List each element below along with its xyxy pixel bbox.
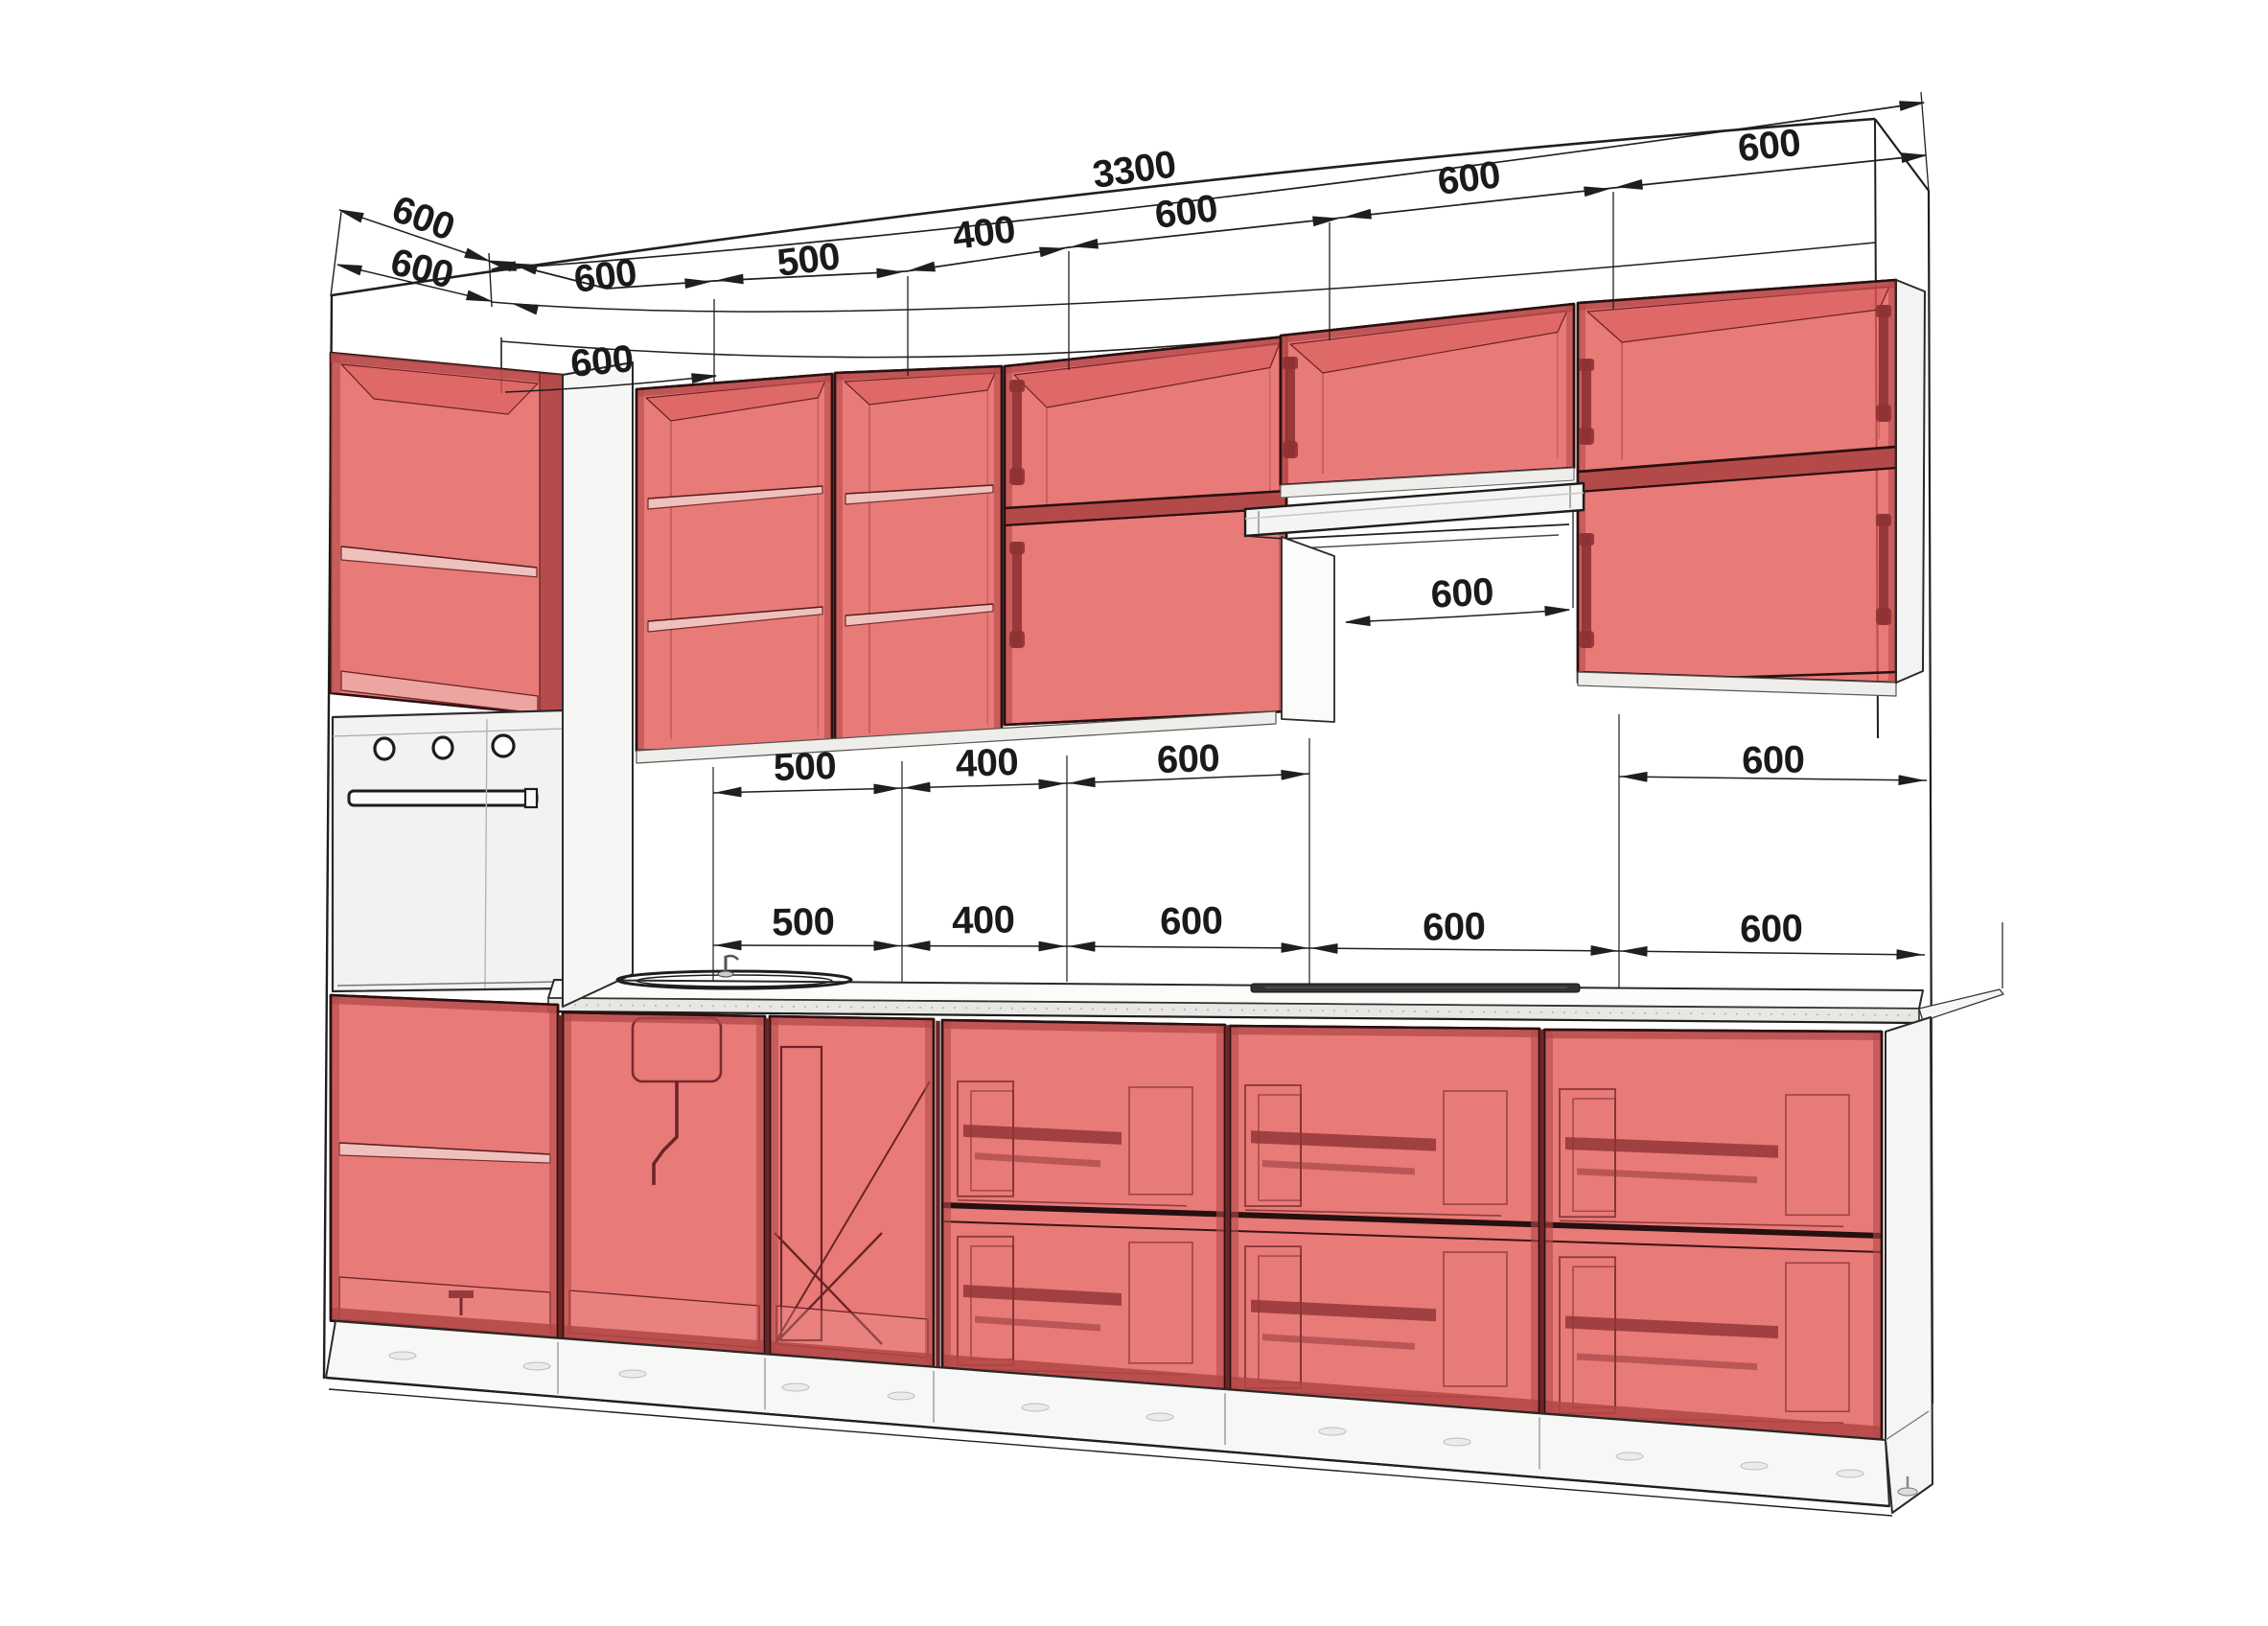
svg-text:600: 600: [568, 337, 635, 385]
svg-text:500: 500: [772, 900, 835, 943]
svg-text:600: 600: [1742, 738, 1805, 781]
svg-text:600: 600: [1156, 737, 1220, 781]
svg-text:400: 400: [955, 741, 1019, 785]
svg-text:600: 600: [1160, 899, 1223, 942]
svg-text:600: 600: [1430, 570, 1494, 616]
svg-text:500: 500: [775, 235, 842, 285]
svg-text:600: 600: [1423, 905, 1486, 948]
svg-text:600: 600: [1152, 187, 1219, 237]
svg-text:600: 600: [1736, 122, 1802, 171]
svg-text:600: 600: [571, 251, 638, 301]
svg-text:400: 400: [952, 898, 1015, 941]
svg-text:500: 500: [773, 745, 837, 789]
svg-text:600: 600: [1435, 153, 1502, 203]
svg-text:400: 400: [950, 208, 1017, 258]
svg-text:600: 600: [1740, 907, 1803, 950]
